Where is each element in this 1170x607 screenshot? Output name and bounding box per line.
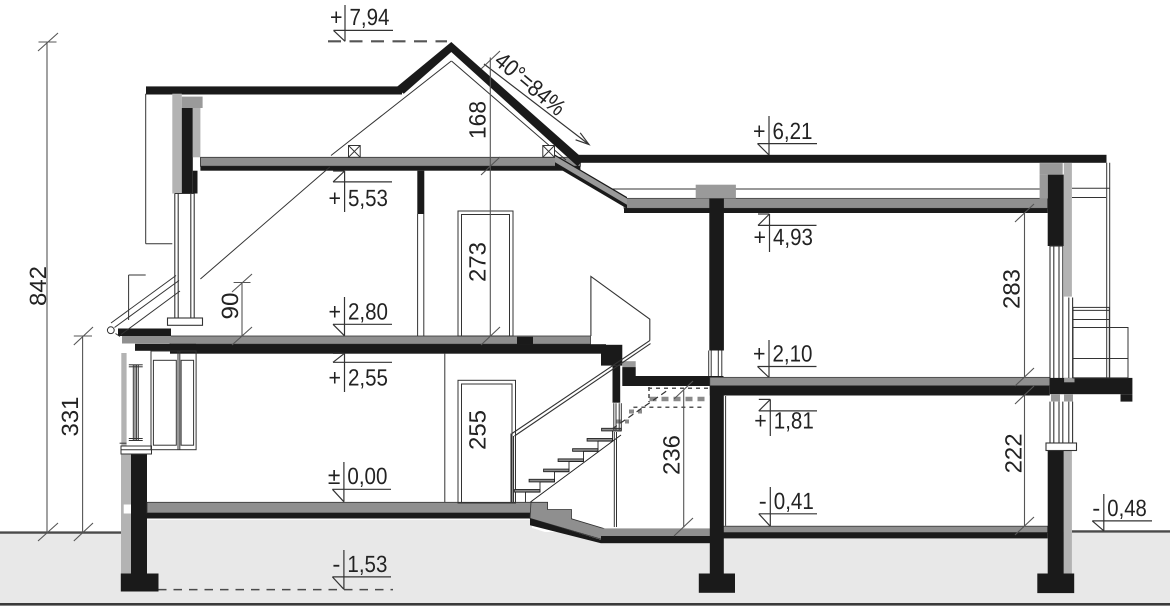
svg-text:2,55: 2,55 bbox=[348, 365, 388, 391]
svg-text:236: 236 bbox=[659, 435, 685, 475]
svg-text:0,41: 0,41 bbox=[774, 488, 814, 514]
svg-text:4,93: 4,93 bbox=[773, 224, 813, 250]
svg-text:+: + bbox=[329, 299, 342, 325]
svg-text:+: + bbox=[753, 341, 766, 367]
svg-text:+: + bbox=[754, 224, 767, 250]
svg-text:+: + bbox=[329, 185, 342, 211]
svg-text:±: ± bbox=[328, 463, 341, 489]
svg-text:0,00: 0,00 bbox=[347, 463, 387, 489]
svg-text:+: + bbox=[754, 407, 767, 433]
svg-text:255: 255 bbox=[465, 410, 491, 450]
svg-text:283: 283 bbox=[999, 269, 1025, 309]
svg-text:331: 331 bbox=[57, 397, 83, 437]
svg-text:90: 90 bbox=[217, 293, 243, 320]
svg-text:0,48: 0,48 bbox=[1107, 495, 1147, 521]
svg-text:2,10: 2,10 bbox=[773, 341, 813, 367]
svg-text:+: + bbox=[753, 118, 766, 144]
svg-text:842: 842 bbox=[25, 266, 51, 306]
svg-text:1,53: 1,53 bbox=[347, 551, 387, 577]
svg-text:-: - bbox=[1092, 495, 1100, 521]
svg-text:-: - bbox=[332, 551, 340, 577]
svg-text:-: - bbox=[759, 488, 767, 514]
svg-text:7,94: 7,94 bbox=[350, 4, 390, 30]
svg-text:5,53: 5,53 bbox=[348, 185, 388, 211]
svg-text:+: + bbox=[329, 365, 342, 391]
svg-text:2,80: 2,80 bbox=[348, 299, 388, 325]
svg-text:273: 273 bbox=[465, 242, 491, 282]
svg-text:168: 168 bbox=[465, 101, 491, 139]
svg-text:6,21: 6,21 bbox=[773, 118, 813, 144]
svg-text:222: 222 bbox=[1001, 433, 1027, 473]
svg-text:1,81: 1,81 bbox=[774, 407, 814, 433]
svg-text:+: + bbox=[330, 4, 343, 30]
